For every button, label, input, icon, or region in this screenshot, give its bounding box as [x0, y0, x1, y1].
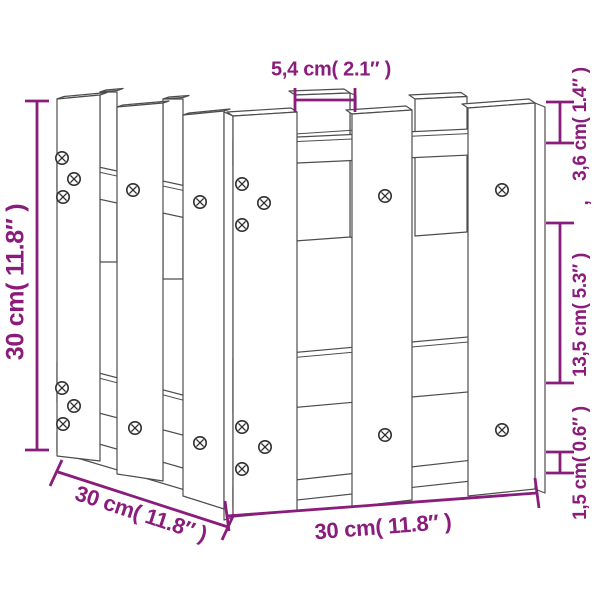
screw-icon: [496, 184, 508, 196]
dim-label-right-bottom: 1,5 cm( 0.6″ ): [570, 406, 592, 520]
inner-picket: [295, 93, 350, 241]
dim-label-separator: ,: [572, 201, 594, 206]
screw-icon: [379, 190, 391, 202]
screw-icon: [236, 178, 248, 190]
screw-icon: [68, 173, 80, 185]
screw-icon: [258, 197, 270, 209]
screw-icon: [379, 429, 391, 441]
screw-icon: [236, 219, 248, 231]
inner-picket: [415, 97, 467, 237]
screw-icon: [194, 437, 206, 449]
dim-label-left-height: 30 cm( 11.8″ ): [2, 204, 31, 360]
corner-edge: [224, 112, 233, 520]
screw-icon: [57, 418, 69, 430]
screw-icon: [194, 196, 206, 208]
fence-picket: [183, 111, 224, 509]
product-dimension-diagram: 5,4 cm( 2.1″ ) 30 cm( 11.8″ ) 3,6 cm( 1.…: [0, 0, 600, 600]
screw-icon: [496, 424, 508, 436]
screw-icon: [57, 191, 69, 203]
left-face-boards: [57, 93, 233, 521]
dim-label-top-width: 5,4 cm( 2.1″ ): [271, 59, 391, 82]
screw-icon: [236, 463, 248, 475]
front-face-boards: [227, 99, 545, 517]
screw-icon: [56, 152, 68, 164]
picket-side-face: [535, 103, 545, 493]
screw-icon: [236, 421, 248, 433]
fence-picket: [352, 110, 412, 507]
fence-picket: [233, 112, 297, 517]
fence-picket: [468, 103, 535, 496]
dim-label-right-top: 3,6 cm( 1.4″ ): [570, 67, 592, 181]
screw-icon: [127, 184, 139, 196]
screw-icon: [259, 441, 271, 453]
dim-label-right-middle: 13,5 cm( 5.3″ ): [570, 253, 592, 377]
screw-icon: [68, 400, 80, 412]
screw-icon: [56, 382, 68, 394]
screw-icon: [129, 422, 141, 434]
